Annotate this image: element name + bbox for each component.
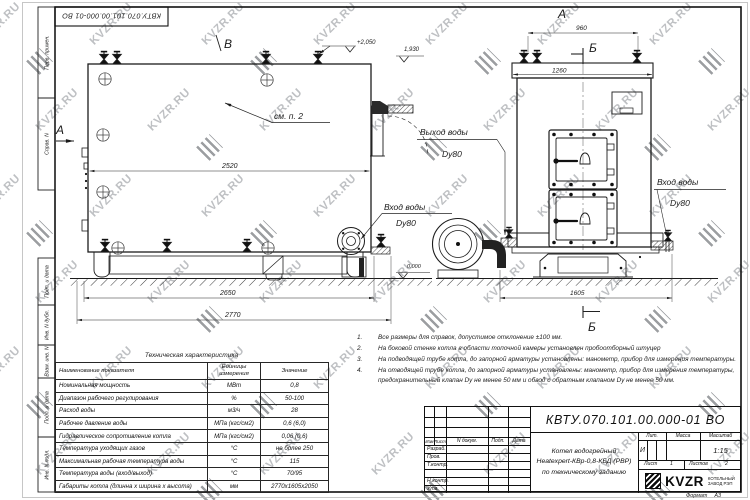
ground-line: [70, 279, 718, 286]
title-block-doc-number: КВТУ.070.101.00.000-01 ВО: [530, 407, 741, 432]
col-izm: Изм: [425, 437, 434, 445]
format-note: ФорматА3: [686, 493, 728, 499]
water-inlet-front-dn: Dy80: [670, 198, 690, 208]
spec-col-units: Единицы измерения: [208, 363, 261, 380]
format-label: Формат: [686, 493, 707, 499]
col-list: Лист: [434, 437, 446, 445]
spec-row: Рабочее давление водыМПа (кгс/см2)0,6 (6…: [56, 417, 329, 430]
spec-row: Номинальная мощностьМВт0,8: [56, 380, 329, 393]
margin-label: Подп. и дата: [45, 391, 51, 424]
spec-table-title: Техническая характеристика: [55, 352, 328, 359]
lit-value: И: [638, 440, 647, 460]
boiler-front-view: [501, 51, 673, 277]
margin-label: Подп. и дата: [45, 265, 51, 298]
spec-row: Температура воды (вход/выход)°С70/95: [56, 468, 329, 481]
note-item: 3. На подводящей трубе котла, до запорно…: [357, 355, 737, 365]
note-item: 4. На отводящей трубе котла, до запорной…: [357, 366, 737, 386]
brand-line2: ЗАВОД РЭП: [708, 481, 735, 486]
row-utv: Утв.: [425, 487, 448, 492]
note-text: На подводящей трубе котла, до запорной а…: [378, 355, 737, 365]
product-name: Котел водогрейный Heatexpert-КВр-0,8-КБД…: [531, 433, 637, 492]
dim-2650: 2650: [219, 290, 236, 297]
note-item: 2. На боковой стенке котла в области топ…: [357, 344, 737, 354]
see-note-label: см. п. 2: [274, 111, 303, 121]
spec-table-block: Техническая характеристика Наименование …: [55, 352, 328, 493]
product-line2: Heatexpert-КВр-0,8-КБД (РВР): [537, 458, 632, 466]
row-nkontr: Н.контр.: [425, 479, 448, 484]
note-text: Все размеры для справок, допустимое откл…: [378, 333, 737, 343]
kvzr-logo-text: KVZR: [665, 474, 704, 489]
row-tkontr: Т.контр.: [425, 463, 448, 468]
row-prov: Пров.: [425, 455, 448, 460]
note-item: 1. Все размеры для справок, допустимое о…: [357, 333, 737, 343]
blower-fan: [433, 219, 507, 279]
water-inlet-front-label: Вход воды: [657, 177, 699, 187]
row-razrab: Разраб.: [425, 447, 448, 452]
note-number: 2.: [357, 344, 378, 354]
sheet-label: Лист: [642, 462, 657, 467]
spec-row: Диапазон рабочего регулирования%50-100: [56, 392, 329, 405]
scale-value: 1:15: [700, 440, 741, 460]
margin-label: Взам. инв. N: [45, 346, 51, 376]
margin-label: Перв. примен.: [45, 35, 51, 69]
drawing-sheet: KVZR.RUKVZR.RUKVZR.RUKVZR.RUKVZR.RUKVZR.…: [0, 0, 750, 500]
water-inlet-side-dn: Dy80: [396, 218, 416, 228]
dim-1260: 1260: [552, 68, 567, 75]
water-inlet-side-label: Вход воды: [384, 202, 426, 212]
elevation-2050: +2,050: [357, 40, 376, 46]
water-outlet-label: Выход воды: [420, 127, 469, 137]
note-number: 1.: [357, 333, 378, 343]
water-outlet-dn: Dy80: [442, 149, 462, 159]
spec-row: Расход водым3/ч28: [56, 405, 329, 418]
brand-subtitle: КОТЕЛЬНЫЙ ЗАВОД РЭП: [708, 476, 735, 487]
dim-2520: 2520: [221, 163, 238, 170]
section-marker-b-top: Б: [589, 41, 597, 55]
view-marker-a-front: А: [557, 7, 566, 21]
elevation-0000: 0.000: [407, 264, 422, 270]
col-podp: Подп.: [488, 437, 508, 445]
spec-col-value: Значение: [261, 363, 329, 380]
sheets-label: Листов: [687, 462, 708, 467]
view-marker-a-side: А: [55, 123, 64, 137]
boiler-side-view: [82, 52, 428, 280]
sheets-value: 2: [723, 462, 728, 467]
margin-label: Инв. N подл.: [45, 449, 51, 479]
spec-table: Наименование показателя Единицы измерени…: [55, 362, 329, 493]
product-line3: по техническому заданию: [542, 469, 626, 477]
brand-block: KVZR КОТЕЛЬНЫЙ ЗАВОД РЭП: [639, 469, 741, 493]
dim-1605: 1605: [570, 290, 585, 297]
scale-label: Масштаб: [700, 432, 741, 440]
elevation-1930: 1,930: [404, 47, 420, 53]
sheet-value: 1: [668, 462, 673, 467]
dim-2770: 2770: [224, 312, 241, 319]
doc-number-rotated: КВТУ.070.101.00.000-01 ВО: [62, 12, 161, 21]
mass-label: Масса: [666, 432, 700, 440]
margin-label: Справ. N: [45, 133, 51, 155]
product-line1: Котел водогрейный: [552, 448, 617, 456]
section-marker-b-bottom: Б: [588, 320, 596, 334]
spec-row: Гидравлическое сопротивление котлаМПа (к…: [56, 430, 329, 443]
note-text: На отводящей трубе котла, до запорной ар…: [378, 366, 737, 386]
view-marker-v: В: [224, 37, 232, 51]
format-value: А3: [714, 493, 721, 499]
col-data: Дата: [508, 437, 530, 445]
spec-row: Максимальная рабочая температура воды°С1…: [56, 455, 329, 468]
dim-960: 960: [576, 25, 587, 32]
margin-label: Инв. N дубл.: [45, 310, 51, 340]
kvzr-logo-icon: [645, 473, 661, 489]
note-number: 3.: [357, 355, 378, 365]
title-block: КВТУ.070.101.00.000-01 ВО Изм Лист N док…: [424, 406, 741, 492]
spec-row: Габариты котла (длинна х ширина х высота…: [56, 480, 329, 493]
notes-list: 1. Все размеры для справок, допустимое о…: [357, 333, 737, 387]
note-text: На боковой стенке котла в области топочн…: [378, 344, 737, 354]
col-docnum: N докум.: [446, 437, 488, 445]
note-number: 4.: [357, 366, 378, 386]
lit-label: Лит.: [638, 432, 666, 440]
spec-col-name: Наименование показателя: [56, 363, 208, 380]
spec-header-row: Наименование показателя Единицы измерени…: [56, 363, 329, 380]
spec-row: Температура уходящих газов°Сне более 250: [56, 442, 329, 455]
